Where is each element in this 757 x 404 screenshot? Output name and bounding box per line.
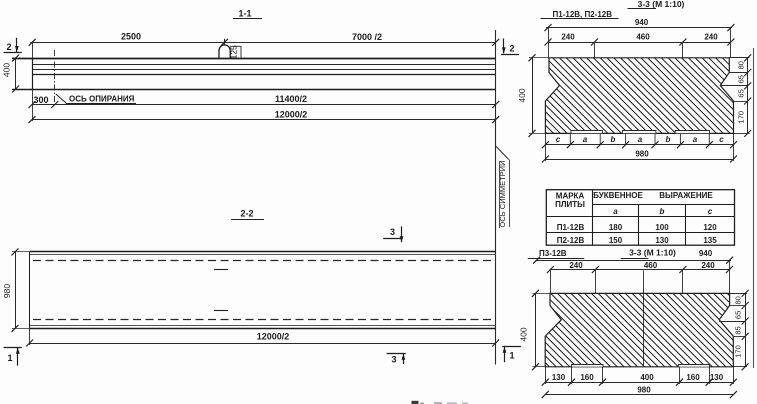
svg-text:135: 135 — [703, 236, 717, 245]
svg-text:ПЛИТЫ: ПЛИТЫ — [555, 200, 585, 209]
svg-text:300: 300 — [33, 95, 48, 105]
svg-text:2: 2 — [6, 42, 11, 52]
svg-text:400: 400 — [519, 327, 529, 341]
svg-text:65: 65 — [736, 89, 745, 97]
svg-text:П2-12В: П2-12В — [557, 236, 585, 245]
svg-text:400: 400 — [2, 63, 12, 77]
svg-text:ОСЬ СИММЕТРИИ: ОСЬ СИММЕТРИИ — [498, 161, 507, 228]
svg-text:1: 1 — [7, 353, 12, 363]
svg-text:а: а — [613, 207, 618, 216]
svg-text:85: 85 — [734, 326, 743, 334]
svg-text:80: 80 — [736, 61, 745, 69]
svg-text:940: 940 — [635, 18, 649, 27]
svg-text:7000 /2: 7000 /2 — [352, 32, 382, 42]
svg-text:170: 170 — [736, 111, 745, 124]
svg-text:12000/2: 12000/2 — [257, 332, 290, 342]
svg-text:а: а — [583, 135, 588, 144]
svg-text:980: 980 — [635, 150, 649, 159]
svg-text:980: 980 — [637, 386, 651, 395]
svg-text:240: 240 — [561, 32, 575, 41]
svg-text:11400/2: 11400/2 — [275, 94, 307, 104]
svg-text:125: 125 — [229, 45, 239, 59]
svg-text:а: а — [693, 135, 698, 144]
svg-text:160: 160 — [580, 373, 594, 382]
svg-text:2: 2 — [509, 44, 514, 54]
svg-text:80: 80 — [734, 296, 743, 304]
svg-text:b: b — [666, 135, 671, 144]
svg-text:240: 240 — [569, 261, 583, 270]
svg-text:1-1: 1-1 — [238, 9, 251, 19]
svg-text:160: 160 — [686, 373, 700, 382]
svg-text:400: 400 — [640, 373, 654, 382]
svg-text:БУКВЕННОЕ: БУКВЕННОЕ — [593, 191, 643, 200]
svg-text:65: 65 — [736, 75, 745, 83]
svg-text:130: 130 — [710, 373, 724, 382]
svg-text:120: 120 — [703, 223, 717, 232]
svg-text:с: с — [719, 135, 724, 144]
svg-text:3-3 (М 1:10): 3-3 (М 1:10) — [638, 0, 685, 9]
svg-text:1: 1 — [509, 351, 514, 361]
svg-text:980: 980 — [2, 284, 12, 298]
svg-text:100: 100 — [655, 223, 669, 232]
svg-text:65: 65 — [734, 311, 743, 319]
svg-text:с: с — [556, 135, 561, 144]
svg-text:150: 150 — [609, 236, 623, 245]
svg-text:240: 240 — [701, 261, 715, 270]
svg-text:2-2: 2-2 — [240, 209, 253, 219]
svg-text:3-3 (М 1:10): 3-3 (М 1:10) — [629, 248, 676, 258]
svg-text:460: 460 — [644, 261, 658, 270]
svg-text:240: 240 — [704, 32, 718, 41]
svg-text:а: а — [638, 135, 643, 144]
svg-text:3: 3 — [390, 227, 395, 237]
svg-text:b: b — [660, 207, 665, 216]
svg-text:b: b — [611, 135, 616, 144]
svg-text:П3-12В: П3-12В — [539, 249, 567, 258]
svg-text:180: 180 — [609, 223, 623, 232]
svg-text:3: 3 — [391, 355, 396, 365]
svg-text:940: 940 — [699, 249, 713, 258]
svg-text:400: 400 — [517, 88, 527, 102]
svg-text:460: 460 — [636, 32, 650, 41]
svg-text:170: 170 — [734, 345, 743, 358]
svg-text:П1-12В, П2-12В: П1-12В, П2-12В — [553, 10, 613, 19]
svg-text:12000/2: 12000/2 — [275, 109, 308, 119]
svg-text:ВЫРАЖЕНИЕ: ВЫРАЖЕНИЕ — [659, 191, 713, 200]
svg-text:с: с — [708, 207, 713, 216]
svg-text:2500: 2500 — [121, 32, 141, 42]
svg-text:130: 130 — [655, 236, 669, 245]
svg-text:130: 130 — [552, 373, 566, 382]
svg-text:ОСЬ ОПИРАНИЯ: ОСЬ ОПИРАНИЯ — [69, 95, 135, 104]
svg-text:П1-12В: П1-12В — [557, 223, 585, 232]
